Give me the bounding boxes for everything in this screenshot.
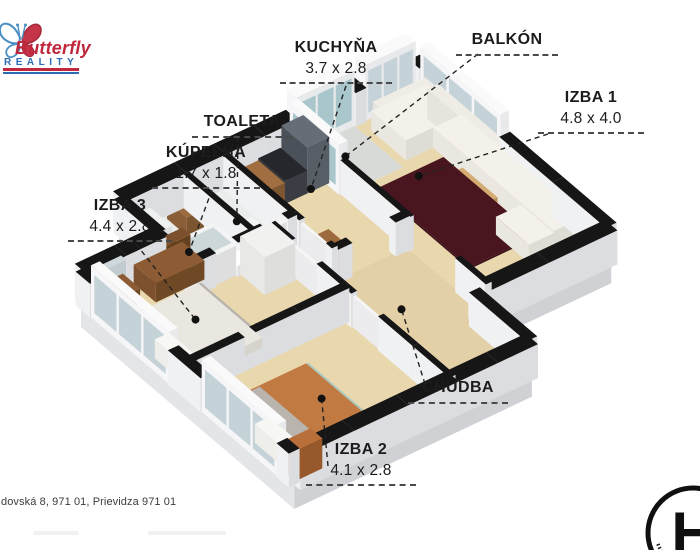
room-dot-kuchyna <box>307 185 315 193</box>
logo-wordmark: Butterfly <box>15 38 91 59</box>
stamp-letter: H <box>671 500 700 550</box>
logo-rule-blue <box>3 72 79 75</box>
room-dot-izba3 <box>192 316 200 324</box>
room-dot-izba2 <box>318 395 326 403</box>
room-dot-chudba <box>398 305 406 313</box>
room-dot-balkon <box>341 152 349 160</box>
faint-artifact <box>148 531 226 535</box>
room-dot-izba1 <box>415 172 423 180</box>
footer-address: dovská 8, 971 01, Prievidza 971 01 <box>1 496 176 508</box>
logo-subtitle: REALITY <box>4 57 78 68</box>
walls-and-furniture <box>75 33 618 491</box>
faint-artifact <box>33 531 79 535</box>
floorplan-render <box>0 0 700 550</box>
agency-logo: Butterfly REALITY <box>0 12 130 80</box>
room-dot-toaleta <box>233 217 241 225</box>
logo-rule-red <box>3 68 79 71</box>
room-dot-kupelna <box>185 248 193 256</box>
watermark-stamp: H <box>620 470 700 550</box>
